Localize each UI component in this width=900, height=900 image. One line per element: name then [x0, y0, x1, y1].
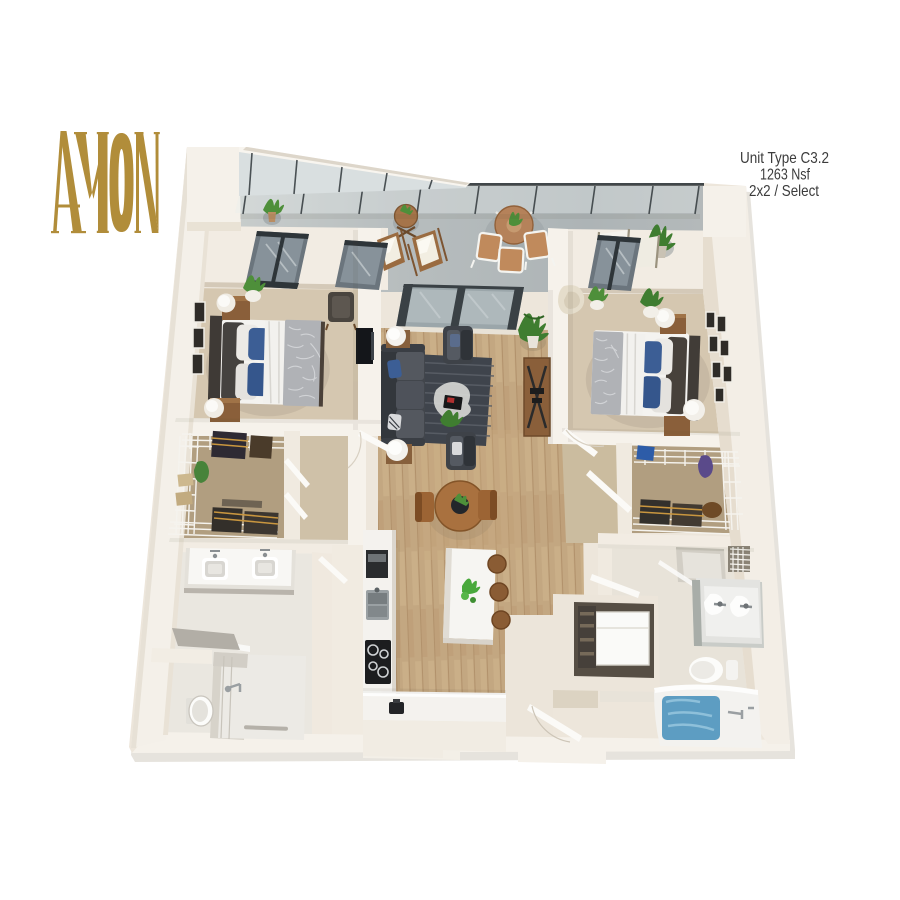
svg-text:1263 Nsf: 1263 Nsf [760, 167, 810, 184]
svg-text:2x2 / Select: 2x2 / Select [749, 183, 819, 200]
svg-text:Unit Type C3.2: Unit Type C3.2 [740, 150, 829, 167]
